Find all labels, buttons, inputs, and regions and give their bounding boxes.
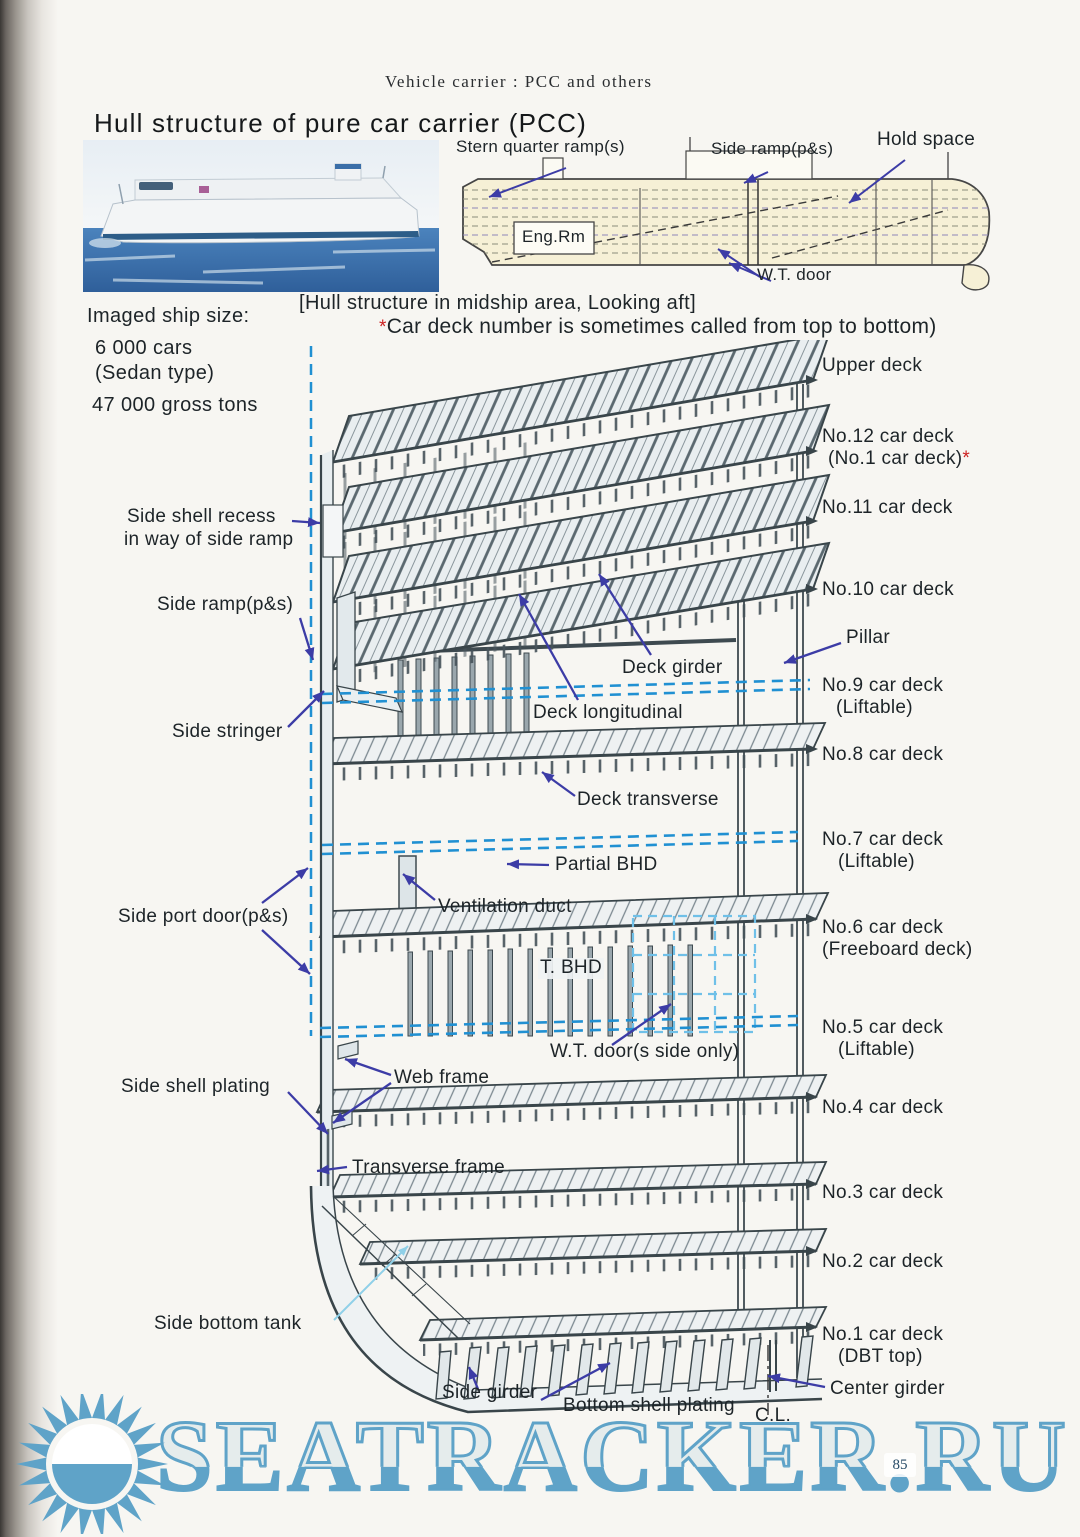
label-no7-car-deck: No.7 car deck — [822, 830, 943, 851]
book-spine-shadow — [0, 0, 58, 1537]
label-side-shell-recess-sub: in way of side ramp — [124, 530, 293, 551]
deck-7-liftable — [322, 832, 798, 854]
label-no7-sub: (Liftable) — [838, 852, 915, 873]
label-deck-longitudinal: Deck longitudinal — [533, 703, 683, 724]
label-no12-alt: (No.1 car deck)* — [828, 449, 970, 470]
label-upper-deck: Upper deck — [822, 356, 922, 377]
label-no5-sub: (Liftable) — [838, 1040, 915, 1061]
label-side-bottom-tank: Side bottom tank — [154, 1314, 301, 1335]
label-deck-transverse: Deck transverse — [577, 790, 719, 811]
page-number: 85 — [884, 1453, 916, 1477]
label-no9-car-deck: No.9 car deck — [822, 676, 943, 697]
bilge-and-bottom — [311, 1186, 822, 1415]
label-no12-car-deck: No.12 car deck — [822, 427, 954, 448]
label-wt-door-inner: W.T. door(s side only) — [550, 1042, 739, 1063]
profile-diagram — [450, 135, 1005, 300]
side-ramp-panel — [337, 592, 355, 702]
label-no10-car-deck: No.10 car deck — [822, 580, 954, 601]
label-side-ramp-profile: Side ramp(p&s) — [711, 140, 833, 159]
deck-5-liftable — [320, 1016, 798, 1037]
label-no6-sub: (Freeboard deck) — [822, 940, 973, 961]
label-side-stringer: Side stringer — [172, 722, 283, 743]
label-t-bhd: T. BHD — [538, 958, 604, 979]
label-centerline: C.L. — [755, 1406, 791, 1427]
label-pillar: Pillar — [846, 628, 890, 649]
label-no1-sub: (DBT top) — [838, 1347, 923, 1368]
ship-size-cars: 6 000 cars — [95, 337, 192, 360]
deck-2 — [360, 1229, 826, 1280]
label-ventilation-duct: Ventilation duct — [438, 897, 572, 918]
running-header: Vehicle carrier : PCC and others — [385, 72, 653, 92]
figure-note: *Car deck number is sometimes called fro… — [379, 315, 937, 339]
label-no1-car-deck: No.1 car deck — [822, 1325, 943, 1346]
label-side-shell-recess: Side shell recess — [127, 507, 276, 528]
side-shell-recess — [323, 505, 343, 557]
label-no9-sub: (Liftable) — [836, 698, 913, 719]
figure-caption: [Hull structure in midship area, Looking… — [299, 292, 696, 315]
note-asterisk: * — [379, 317, 387, 338]
page-title: Hull structure of pure car carrier (PCC) — [94, 108, 587, 139]
ship-size-tonnage: 47 000 gross tons — [92, 394, 258, 417]
label-stern-quarter-ramp: Stern quarter ramp(s) — [456, 138, 625, 157]
label-hold-space: Hold space — [877, 130, 975, 151]
label-side-shell-plating: Side shell plating — [121, 1077, 270, 1098]
label-center-girder: Center girder — [830, 1379, 945, 1400]
deck-8 — [322, 723, 825, 781]
ship-size-heading: Imaged ship size: — [87, 305, 249, 328]
upper-decks — [333, 340, 829, 686]
label-no4-car-deck: No.4 car deck — [822, 1098, 943, 1119]
label-deck-girder: Deck girder — [622, 658, 722, 679]
label-no3-car-deck: No.3 car deck — [822, 1183, 943, 1204]
label-web-frame: Web frame — [394, 1068, 489, 1089]
ship-size-type: (Sedan type) — [95, 362, 214, 385]
label-transverse-frame: Transverse frame — [352, 1158, 505, 1179]
label-no6-car-deck: No.6 car deck — [822, 918, 943, 939]
label-wt-door: W.T. door — [757, 266, 832, 285]
transverse-frame — [322, 1128, 334, 1192]
ship-photo — [83, 140, 439, 292]
book-page: Vehicle carrier : PCC and others Hull st… — [0, 0, 1080, 1537]
label-side-port-door: Side port door(p&s) — [118, 907, 288, 928]
deck-number-asterisk: * — [962, 448, 970, 469]
label-no8-car-deck: No.8 car deck — [822, 745, 943, 766]
label-no2-car-deck: No.2 car deck — [822, 1252, 943, 1273]
label-side-ramp: Side ramp(p&s) — [157, 595, 293, 616]
label-eng-rm: Eng.Rm — [522, 228, 585, 247]
side-stringer — [337, 686, 402, 712]
label-partial-bhd: Partial BHD — [555, 855, 658, 876]
label-no11-car-deck: No.11 car deck — [822, 498, 953, 519]
label-side-girder: Side girder — [442, 1383, 537, 1404]
label-no5-car-deck: No.5 car deck — [822, 1018, 943, 1039]
label-bottom-shell-plating: Bottom shell plating — [563, 1396, 735, 1417]
deck-6 — [320, 893, 828, 954]
